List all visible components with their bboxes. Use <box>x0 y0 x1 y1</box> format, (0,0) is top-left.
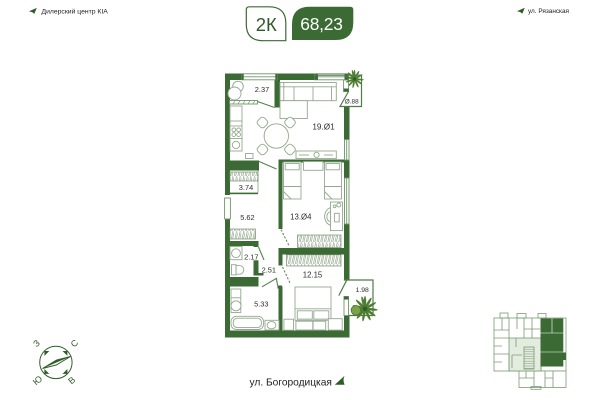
svg-text:ул. Рязанская: ул. Рязанская <box>528 8 570 15</box>
svg-text:Дилерский центр КІА: Дилерский центр КІА <box>42 7 109 15</box>
svg-text:68,23: 68,23 <box>300 14 343 34</box>
svg-text:2.51: 2.51 <box>262 266 276 275</box>
svg-text:2.17: 2.17 <box>244 253 258 262</box>
svg-text:1.98: 1.98 <box>356 287 369 294</box>
svg-text:ул. Богородицкая: ул. Богородицкая <box>250 377 332 388</box>
svg-text:5.62: 5.62 <box>240 213 254 222</box>
svg-text:Ø.88: Ø.88 <box>345 99 359 106</box>
svg-text:3.74: 3.74 <box>239 183 253 192</box>
svg-text:2.37: 2.37 <box>255 85 269 94</box>
svg-text:5.33: 5.33 <box>254 299 268 308</box>
svg-text:2К: 2К <box>256 14 277 35</box>
svg-text:12.15: 12.15 <box>303 271 323 280</box>
svg-text:19.Ø1: 19.Ø1 <box>312 123 335 132</box>
svg-text:13.Ø4: 13.Ø4 <box>290 213 312 222</box>
